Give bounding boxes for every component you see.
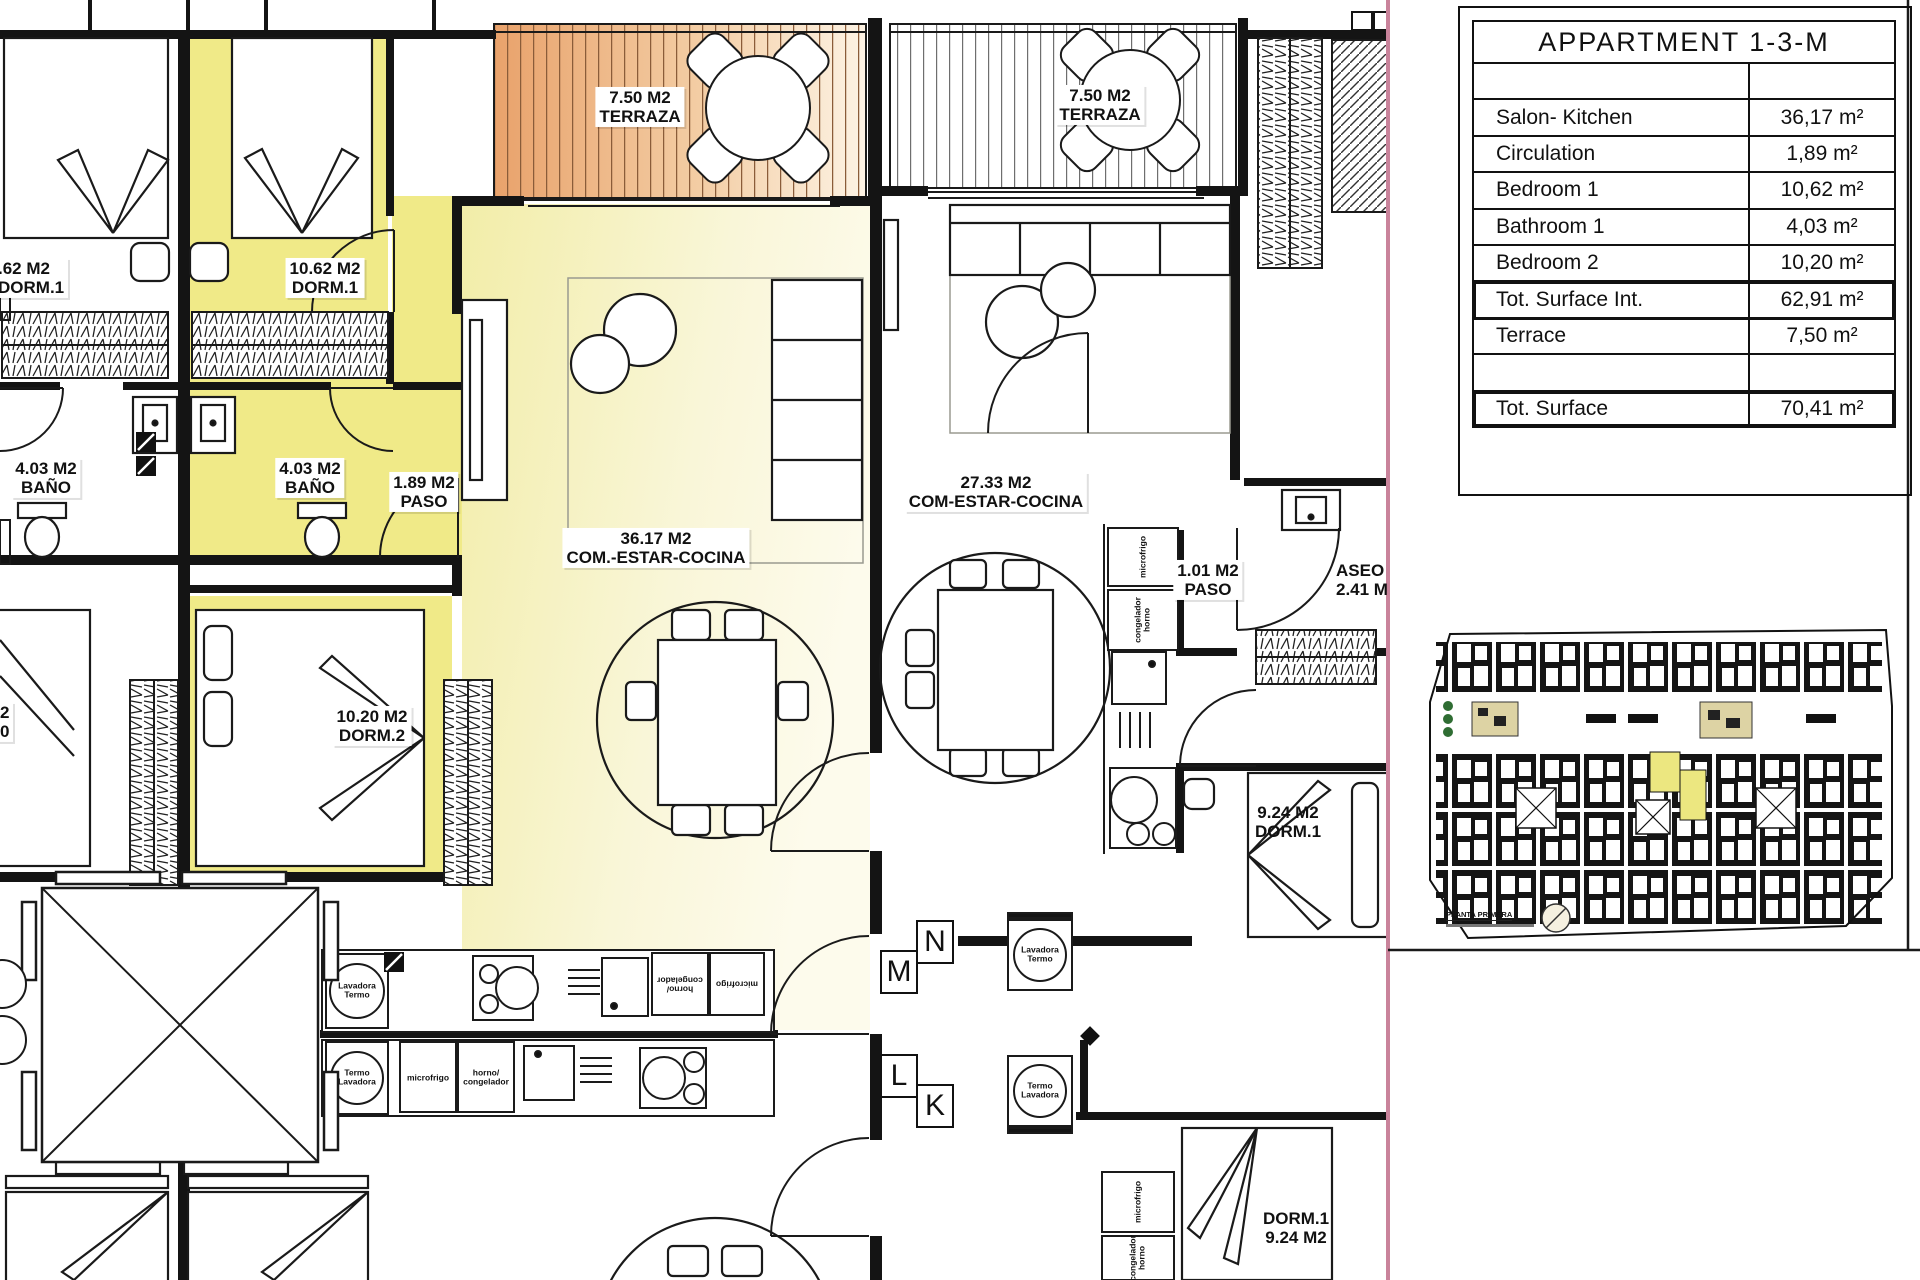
room-name: PASO xyxy=(393,492,454,511)
room-area: 1.89 M2 xyxy=(393,473,454,492)
table-row: Bedroom 1 10,62 m² xyxy=(1474,173,1894,209)
lightwell xyxy=(0,872,338,1162)
row-value: 10,62 m² xyxy=(1750,173,1894,207)
letter: M xyxy=(887,955,912,989)
room-label-salon: 36.17 M2 COM.-ESTAR-COCINA xyxy=(562,528,749,568)
corridor-letter-l: L xyxy=(880,1054,918,1098)
corridor-letter-k: K xyxy=(916,1084,954,1128)
room-label-salon-right: 27.33 M2 COM-ESTAR-COCINA xyxy=(905,472,1087,512)
overview-miniplan xyxy=(1430,630,1892,938)
apartment-title: APPARTMENT 1-3-M xyxy=(1474,22,1894,64)
room-area: 4.03 M2 xyxy=(279,459,340,478)
table-row: Bathroom 1 4,03 m² xyxy=(1474,210,1894,246)
row-value xyxy=(1750,355,1894,389)
room-name: TERRAZA xyxy=(1059,105,1140,124)
room-label-terraza-right: 7.50 M2 TERRAZA xyxy=(1055,85,1144,125)
room-name: COM.-ESTAR-COCINA xyxy=(566,548,745,567)
letter: K xyxy=(925,1089,945,1123)
row-label: Bedroom 1 xyxy=(1474,173,1750,207)
row-label: Bedroom 2 xyxy=(1474,246,1750,280)
row-value xyxy=(1750,64,1894,98)
row-value: 36,17 m² xyxy=(1750,100,1894,134)
room-label-dorm2: 10.20 M2 DORM.2 xyxy=(333,706,412,746)
fridge-label: microfrigo xyxy=(1138,531,1147,583)
row-value: 62,91 m² xyxy=(1750,282,1894,316)
room-label-bano: 4.03 M2 BAÑO xyxy=(275,458,344,498)
room-label-dorm2-left-partial: 2 0 xyxy=(0,702,13,742)
room-area: 7.50 M2 xyxy=(599,88,680,107)
row-label: Bathroom 1 xyxy=(1474,210,1750,244)
room-label-dorm1-left-partial: .62 M2 DORM.1 xyxy=(0,258,68,298)
table-row: Circulation 1,89 m² xyxy=(1474,137,1894,173)
row-label: Circulation xyxy=(1474,137,1750,171)
room-name: BAÑO xyxy=(279,478,340,497)
room-name: DORM.1 xyxy=(1263,1209,1329,1228)
letter: N xyxy=(924,925,946,959)
corridor-letter-m: M xyxy=(880,950,918,994)
washer-label: Lavadora Termo xyxy=(331,982,383,1001)
fridge-label: microfrigo xyxy=(402,1073,454,1082)
table-row-total-int: Tot. Surface Int. 62,91 m² xyxy=(1474,282,1894,318)
row-value: 70,41 m² xyxy=(1750,392,1894,426)
table-row: Terrace 7,50 m² xyxy=(1474,319,1894,355)
room-area: 1.01 M2 xyxy=(1177,561,1238,580)
room-label-terraza-left: 7.50 M2 TERRAZA xyxy=(595,87,684,127)
washer-label: Termo Lavadora xyxy=(331,1069,383,1088)
table-row-total: Tot. Surface 70,41 m² xyxy=(1474,392,1894,426)
room-area: 36.17 M2 xyxy=(566,529,745,548)
table-row xyxy=(1474,64,1894,100)
room-label-bano-left: 4.03 M2 BAÑO xyxy=(11,458,80,498)
table-row: Bedroom 2 10,20 m² xyxy=(1474,246,1894,282)
room-area: 9.24 M2 xyxy=(1263,1228,1329,1247)
oven-label: congelador horno xyxy=(1129,1232,1148,1280)
room-area: 9.24 M2 xyxy=(1255,803,1321,822)
corridor-letter-n: N xyxy=(916,920,954,964)
row-label: Tot. Surface xyxy=(1474,392,1750,426)
room-name: DORM.2 xyxy=(337,726,408,745)
washer-label: Termo Lavadora xyxy=(1014,1082,1066,1101)
oven-label: horno/ congelador xyxy=(654,975,706,994)
room-name: DORM.1 xyxy=(1255,822,1321,841)
overview-caption-subline xyxy=(1446,924,1534,927)
room-label-dorm1-right: 9.24 M2 DORM.1 xyxy=(1251,802,1325,842)
row-value: 7,50 m² xyxy=(1750,319,1894,353)
room-area: .62 M2 xyxy=(0,259,64,278)
room-area: 7.50 M2 xyxy=(1059,86,1140,105)
oven-label: horno/ congelador xyxy=(460,1069,512,1088)
row-value: 1,89 m² xyxy=(1750,137,1894,171)
surface-table: APPARTMENT 1-3-M Salon- Kitchen 36,17 m²… xyxy=(1472,20,1896,428)
room-area: 2.41 M xyxy=(1336,580,1388,599)
room-name: COM-ESTAR-COCINA xyxy=(909,492,1083,511)
row-label: Salon- Kitchen xyxy=(1474,100,1750,134)
room-label-paso-right: 1.01 M2 PASO xyxy=(1173,560,1242,600)
room-name: 0 xyxy=(0,722,9,741)
room-label-paso: 1.89 M2 PASO xyxy=(389,472,458,512)
room-area: 10.20 M2 xyxy=(337,707,408,726)
floorplan-page: 7.50 M2 TERRAZA 7.50 M2 TERRAZA .62 M2 D… xyxy=(0,0,1920,1280)
table-row: Salon- Kitchen 36,17 m² xyxy=(1474,100,1894,136)
row-label xyxy=(1474,64,1750,98)
fridge-label: microfrigo xyxy=(711,979,763,988)
overview-caption-text: PLANTA PRIMERA xyxy=(1446,910,1512,921)
row-value: 10,20 m² xyxy=(1750,246,1894,280)
room-name: DORM.1 xyxy=(290,278,361,297)
room-name: TERRAZA xyxy=(599,107,680,126)
overview-caption: PLANTA PRIMERA xyxy=(1446,904,1542,927)
room-name: DORM.1 xyxy=(0,278,64,297)
room-name: ASEO xyxy=(1336,561,1388,580)
room-name: BAÑO xyxy=(15,478,76,497)
washer-label: Lavadora Termo xyxy=(1014,946,1066,965)
row-value: 4,03 m² xyxy=(1750,210,1894,244)
room-label-dorm1-bottom: DORM.1 9.24 M2 xyxy=(1259,1208,1333,1248)
room-area: 10.62 M2 xyxy=(290,259,361,278)
room-area: 4.03 M2 xyxy=(15,459,76,478)
row-label: Terrace xyxy=(1474,319,1750,353)
fridge-label: microfrigo xyxy=(1133,1176,1142,1228)
oven-label: congelador horno xyxy=(1134,594,1153,646)
table-row xyxy=(1474,355,1894,391)
room-label-dorm1: 10.62 M2 DORM.1 xyxy=(286,258,365,298)
row-label xyxy=(1474,355,1750,389)
letter: L xyxy=(891,1059,908,1093)
room-label-aseo: ASEO 2.41 M xyxy=(1332,560,1392,600)
room-area: 27.33 M2 xyxy=(909,473,1083,492)
row-label: Tot. Surface Int. xyxy=(1474,282,1750,316)
room-name: PASO xyxy=(1177,580,1238,599)
room-area: 2 xyxy=(0,703,9,722)
